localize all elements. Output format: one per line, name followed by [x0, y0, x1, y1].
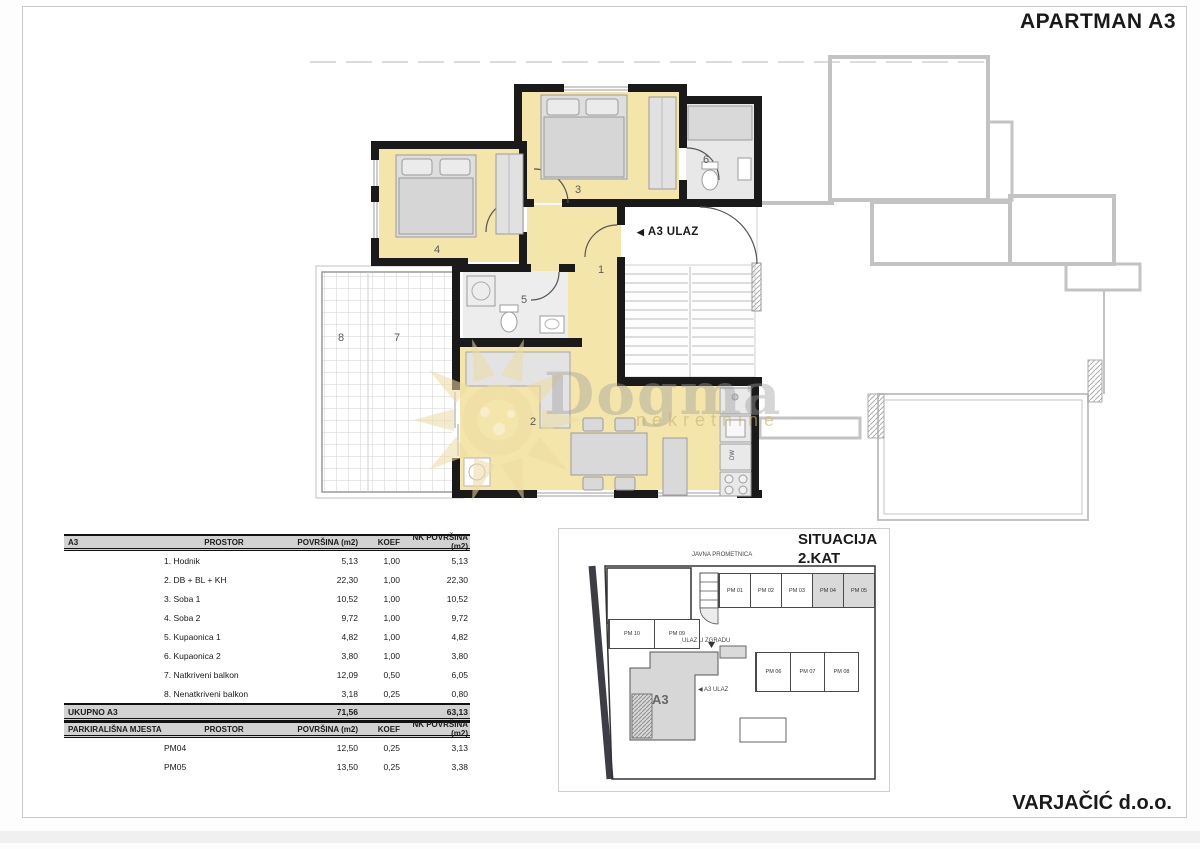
row-area: 10,52 [284, 594, 358, 604]
parking-stall: PM 04 [812, 574, 843, 607]
area-table-header: A3 PROSTOR POVRŠINA (m2) KOEF NK POVRŠIN… [64, 534, 470, 551]
row-name: 7. Natkriveni balkon [164, 670, 284, 680]
dishwasher-label: DW [730, 438, 736, 472]
table-row: 5. Kupaonica 1 4,82 1,00 4,82 [64, 627, 470, 646]
room-number-bathroom1: 5 [517, 294, 531, 306]
row-nk: 6,05 [400, 670, 470, 680]
header-space: PROSTOR [164, 538, 284, 547]
row-area: 12,09 [284, 670, 358, 680]
apartment-entrance-label: ◀ A3 ULAZ [637, 226, 699, 238]
entrance-arrow-icon: ◀ [637, 227, 644, 238]
row-koef: 1,00 [358, 632, 400, 642]
row-nk: 0,80 [400, 689, 470, 699]
landing-pillar [752, 263, 761, 311]
parking-stall: PM 03 [781, 574, 812, 607]
situation-apartment-label: A3 [652, 692, 669, 707]
watermark-subtitle: nekretnine [636, 410, 780, 431]
row-koef: 0,25 [358, 762, 400, 772]
neighbour-pillar [868, 394, 884, 438]
row-nk: 9,72 [400, 613, 470, 623]
row-name: 4. Soba 2 [164, 613, 284, 623]
room-number-bathroom2: 6 [699, 154, 713, 166]
row-nk: 3,13 [400, 743, 470, 753]
situation-a3-entrance-label: ◀ A3 ULAZ [698, 686, 728, 693]
chair [583, 477, 603, 490]
building-entrance-label: ULAZ U ZGRADU [682, 638, 730, 644]
situation-title: SITUACIJA 2.KAT [798, 530, 877, 568]
row-nk: 3,80 [400, 651, 470, 661]
row-koef: 0,25 [358, 689, 400, 699]
room-number-bedroom2: 4 [430, 244, 444, 256]
toilet [501, 312, 517, 332]
room-number-uncovered-balcony: 8 [334, 332, 348, 344]
table-row: 8. Nenatkriveni balkon 3,18 0,25 0,80 [64, 684, 470, 703]
plan-sheet: { "page": { "title": "APARTMAN A3", "com… [0, 0, 1200, 849]
building-entrance-box [720, 646, 746, 658]
row-koef: 1,00 [358, 651, 400, 661]
row-koef: 1,00 [358, 556, 400, 566]
row-nk: 10,52 [400, 594, 470, 604]
row-name: 8. Nenatkriveni balkon [164, 689, 284, 699]
row-name: 3. Soba 1 [164, 594, 284, 604]
row-name: PM04 [164, 743, 284, 753]
parking-header-group: PARKIRALIŠNA MJESTA [64, 725, 164, 734]
parking-row-left: PM 10PM 09 [608, 619, 700, 649]
street-label: JAVNA PROMETNICA [692, 552, 752, 558]
parking-header-area: POVRŠINA (m2) [284, 725, 358, 734]
parking-stall: PM 06 [756, 653, 790, 691]
room-number-bedroom1: 3 [571, 184, 585, 196]
row-name: 6. Kupaonica 2 [164, 651, 284, 661]
total-label: UKUPNO A3 [64, 707, 164, 717]
area-table-total-row: UKUPNO A3 71,56 63,13 [64, 703, 470, 721]
parking-row-mid: PM 06PM 07PM 08 [755, 652, 859, 692]
area-table: A3 PROSTOR POVRŠINA (m2) KOEF NK POVRŠIN… [64, 534, 470, 776]
row-area: 12,50 [284, 743, 358, 753]
total-nk: 63,13 [400, 707, 470, 717]
sink [738, 158, 751, 180]
parking-header-nk: NK POVRŠINA (m2) [400, 720, 470, 738]
neighbour-apartment-outline [760, 57, 1140, 520]
table-row: 2. DB + BL + KH 22,30 1,00 22,30 [64, 570, 470, 589]
situation-title-line1: SITUACIJA [798, 530, 877, 549]
row-nk: 5,13 [400, 556, 470, 566]
table-row: PM05 13,50 0,25 3,38 [64, 757, 470, 776]
row-koef: 0,25 [358, 743, 400, 753]
row-name: PM05 [164, 762, 284, 772]
header-area: POVRŠINA (m2) [284, 538, 358, 547]
row-area: 3,18 [284, 689, 358, 699]
room-number-covered-balcony: 7 [390, 332, 404, 344]
page-title: APARTMAN A3 [1020, 10, 1176, 34]
parking-stall: PM 01 [719, 574, 750, 607]
parking-row-top: PM 01PM 02PM 03PM 04PM 05 [718, 573, 875, 608]
row-area: 5,13 [284, 556, 358, 566]
table-row: 4. Soba 2 9,72 1,00 9,72 [64, 608, 470, 627]
row-area: 3,80 [284, 651, 358, 661]
shower [688, 106, 752, 140]
row-area: 9,72 [284, 613, 358, 623]
row-name: 5. Kupaonica 1 [164, 632, 284, 642]
washing-machine [467, 276, 495, 306]
header-koef: KOEF [358, 538, 400, 547]
table-row: 1. Hodnik 5,13 1,00 5,13 [64, 551, 470, 570]
entrance-text: A3 ULAZ [648, 226, 699, 238]
table-row: 3. Soba 1 10,52 1,00 10,52 [64, 589, 470, 608]
neighbour-pillar [1088, 360, 1102, 402]
table-row: 7. Natkriveni balkon 12,09 0,50 6,05 [64, 665, 470, 684]
cabinet [663, 438, 687, 495]
header-group: A3 [64, 538, 164, 547]
row-koef: 1,00 [358, 613, 400, 623]
header-nk-area: NK POVRŠINA (m2) [400, 533, 470, 551]
row-area: 4,82 [284, 632, 358, 642]
parking-header-space: PROSTOR [164, 725, 284, 734]
row-area: 22,30 [284, 575, 358, 585]
total-area: 71,56 [284, 707, 358, 717]
table-row: 6. Kupaonica 2 3,80 1,00 3,80 [64, 646, 470, 665]
bottom-strip [0, 831, 1200, 843]
chair [615, 477, 635, 490]
parking-table-body: PM04 12,50 0,25 3,13 PM05 13,50 0,25 3,3… [64, 738, 470, 776]
area-table-body: 1. Hodnik 5,13 1,00 5,13 2. DB + BL + KH… [64, 551, 470, 703]
row-koef: 0,50 [358, 670, 400, 680]
situation-title-line2: 2.KAT [798, 549, 877, 568]
row-nk: 3,38 [400, 762, 470, 772]
company-name: VARJAČIĆ d.o.o. [1012, 792, 1172, 815]
row-name: 1. Hodnik [164, 556, 284, 566]
parking-stall: PM 08 [824, 653, 858, 691]
table-row: PM04 12,50 0,25 3,13 [64, 738, 470, 757]
row-area: 13,50 [284, 762, 358, 772]
toilet [702, 170, 718, 190]
parking-stall: PM 10 [609, 620, 654, 648]
parking-stall: PM 07 [790, 653, 824, 691]
row-nk: 22,30 [400, 575, 470, 585]
parking-header-koef: KOEF [358, 725, 400, 734]
room-number-living: 2 [526, 416, 540, 428]
parking-table-header: PARKIRALIŠNA MJESTA PROSTOR POVRŠINA (m2… [64, 721, 470, 738]
row-koef: 1,00 [358, 575, 400, 585]
row-name: 2. DB + BL + KH [164, 575, 284, 585]
row-koef: 1,00 [358, 594, 400, 604]
parking-stall: PM 02 [750, 574, 781, 607]
dining-table [571, 433, 647, 475]
lower-block [740, 718, 786, 742]
stair-tower [632, 694, 652, 738]
parking-stall: PM 05 [843, 574, 874, 607]
row-nk: 4,82 [400, 632, 470, 642]
room-number-hall: 1 [594, 264, 608, 276]
upper-block [607, 568, 691, 623]
